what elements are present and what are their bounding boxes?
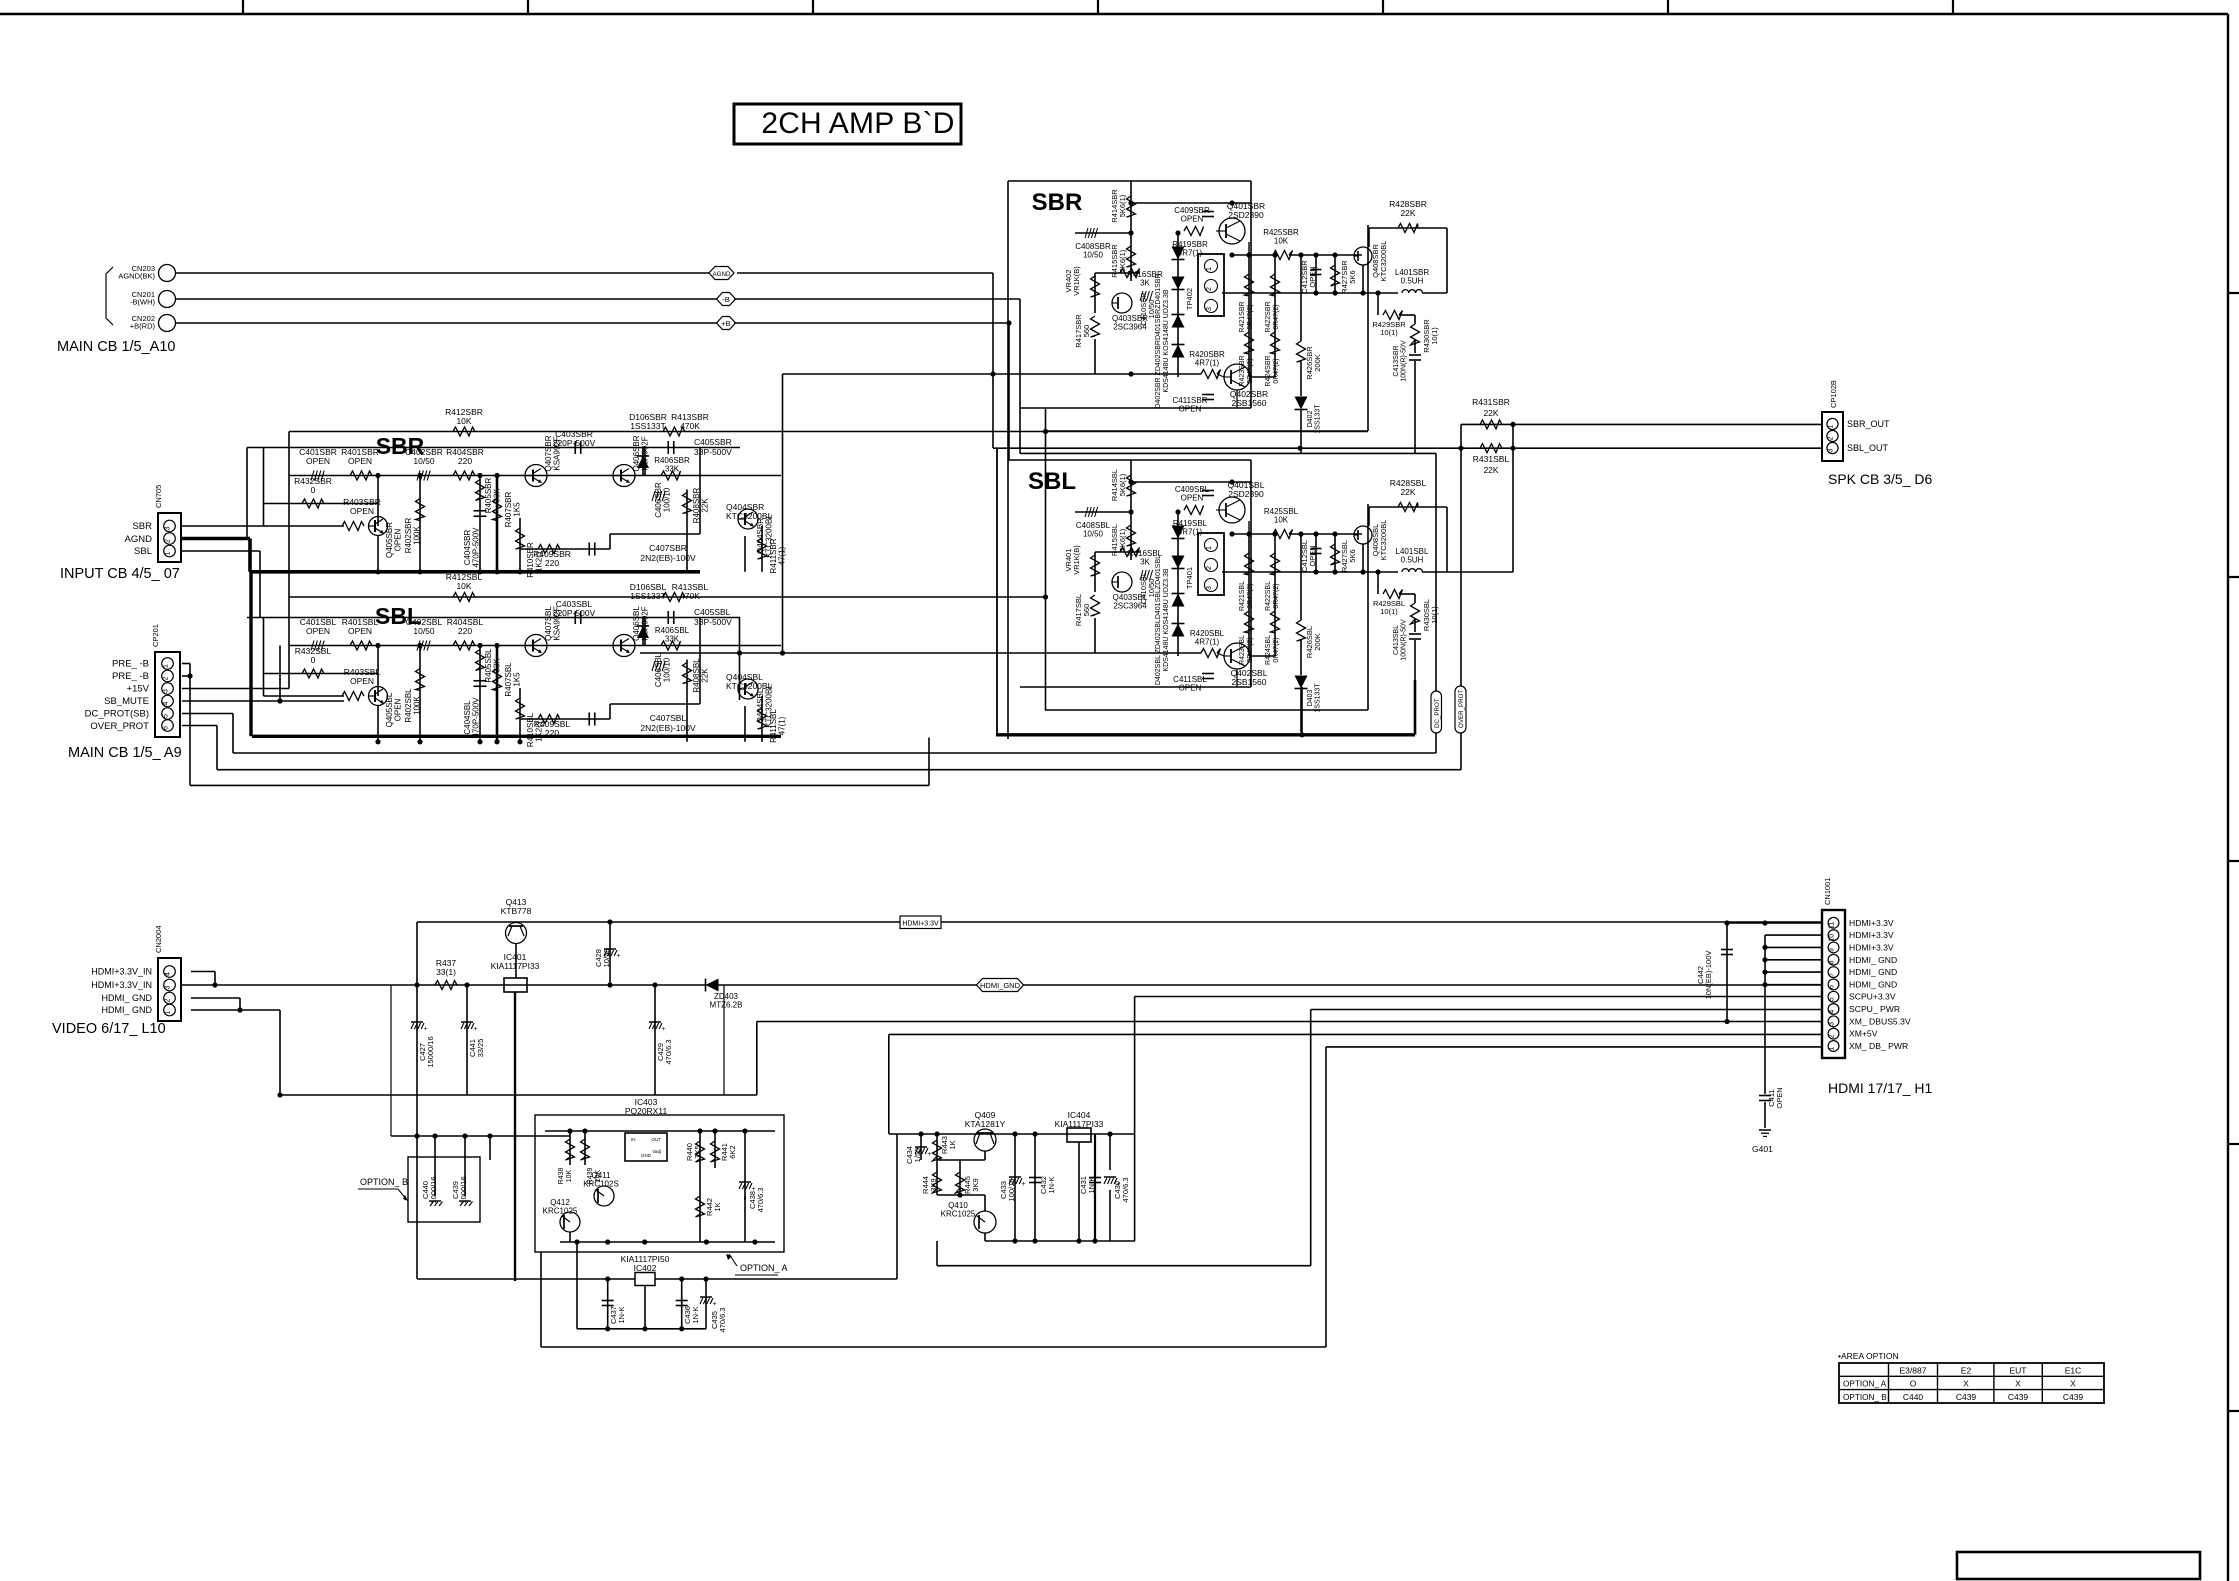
svg-text:OPEN: OPEN — [348, 626, 372, 636]
svg-text:OPEN: OPEN — [1181, 215, 1204, 224]
svg-text:HDMI_ GND: HDMI_ GND — [101, 993, 152, 1003]
svg-text:1N-K: 1N-K — [1047, 1176, 1056, 1193]
svg-text:+: + — [1021, 1181, 1025, 1188]
svg-text:3K9: 3K9 — [929, 1178, 938, 1191]
svg-text:0R47(2): 0R47(2) — [1247, 583, 1254, 608]
svg-text:1: 1 — [1829, 1047, 1836, 1051]
svg-text:1K5: 1K5 — [513, 672, 522, 687]
svg-text:0R47(2): 0R47(2) — [1247, 304, 1254, 329]
svg-text:R431SBR: R431SBR — [1472, 397, 1510, 407]
svg-text:OPEN: OPEN — [348, 456, 372, 466]
svg-text:SB_MUTE: SB_MUTE — [104, 696, 149, 707]
svg-text:GND: GND — [641, 1153, 652, 1158]
svg-text:6K2: 6K2 — [728, 1145, 737, 1158]
svg-text:470P-500V: 470P-500V — [472, 697, 481, 738]
svg-text:10K: 10K — [456, 416, 471, 426]
svg-text:HDMI 17/17_ H1: HDMI 17/17_ H1 — [1828, 1080, 1932, 1096]
svg-text:10N(EB)-100V: 10N(EB)-100V — [1704, 951, 1713, 1000]
svg-text:0R47(2): 0R47(2) — [1273, 304, 1280, 329]
svg-text:AGND: AGND — [125, 534, 153, 545]
svg-text:KIA1117PI33: KIA1117PI33 — [491, 961, 540, 971]
svg-text:6: 6 — [1829, 985, 1836, 989]
svg-text:+: + — [661, 1026, 665, 1033]
svg-text:OPEN: OPEN — [1775, 1087, 1784, 1108]
svg-text:1000/16: 1000/16 — [429, 1176, 438, 1203]
svg-text:XM+5V: XM+5V — [1849, 1029, 1878, 1039]
svg-text:22K: 22K — [701, 498, 710, 513]
svg-text:C439: C439 — [2008, 1392, 2029, 1402]
svg-text:R423SBR: R423SBR — [1239, 355, 1246, 386]
svg-text:+15V: +15V — [127, 684, 150, 695]
svg-text:3: 3 — [1206, 307, 1213, 311]
svg-text:5: 5 — [1829, 997, 1836, 1001]
svg-text:OPEN: OPEN — [306, 626, 330, 636]
svg-text:SCPU_ PWR: SCPU_ PWR — [1849, 1004, 1900, 1014]
svg-text:470/6.3: 470/6.3 — [718, 1307, 727, 1332]
svg-text:0.5UH: 0.5UH — [1401, 277, 1424, 286]
svg-text:C407SBL: C407SBL — [650, 713, 687, 723]
svg-text:CP102B: CP102B — [1829, 380, 1838, 408]
svg-text:1SS133T: 1SS133T — [1315, 683, 1322, 713]
svg-text:CN705: CN705 — [154, 485, 163, 508]
svg-text:OUT: OUT — [652, 1137, 662, 1142]
svg-text:SBR: SBR — [132, 521, 152, 532]
svg-text:11: 11 — [1829, 922, 1836, 929]
svg-text:D402: D402 — [1307, 411, 1314, 428]
svg-text:R424SBL: R424SBL — [1265, 635, 1272, 665]
svg-text:200K: 200K — [1313, 354, 1322, 372]
svg-text:33K: 33K — [665, 635, 680, 644]
svg-text:2: 2 — [1206, 566, 1213, 570]
svg-text:OPEN: OPEN — [394, 698, 403, 721]
svg-text:0.5UH: 0.5UH — [1401, 556, 1424, 565]
svg-text:R422SBR: R422SBR — [1265, 301, 1272, 332]
svg-text:OPTION_ A: OPTION_ A — [1843, 1380, 1887, 1389]
svg-text:200K: 200K — [1313, 633, 1322, 651]
svg-text:KDS4148U KOS4148U UDZ3.3B: KDS4148U KOS4148U UDZ3.3B — [1163, 568, 1170, 671]
svg-text:SBL: SBL — [134, 546, 152, 557]
svg-text:1N-K: 1N-K — [691, 1306, 700, 1323]
svg-text:2: 2 — [1828, 437, 1835, 441]
svg-text:1: 1 — [165, 552, 172, 556]
svg-text:G401: G401 — [1752, 1144, 1773, 1154]
svg-text:470K: 470K — [680, 421, 700, 431]
svg-text:SBL_OUT: SBL_OUT — [1847, 443, 1889, 453]
svg-text:MAIN CB 1/5_ A9: MAIN CB 1/5_ A9 — [68, 745, 182, 761]
svg-text:MAIN CB 1/5_A10: MAIN CB 1/5_A10 — [57, 339, 175, 355]
svg-text:10K: 10K — [1274, 516, 1289, 525]
svg-text:5: 5 — [163, 714, 170, 718]
svg-text:10/50: 10/50 — [1083, 530, 1104, 539]
svg-text:6: 6 — [163, 726, 170, 730]
svg-text:EUT: EUT — [2010, 1366, 2027, 1376]
svg-text:TP402: TP402 — [1185, 288, 1194, 310]
svg-text:3: 3 — [1206, 586, 1213, 590]
svg-text:10/50: 10/50 — [413, 456, 435, 466]
svg-text:+: + — [712, 1301, 716, 1308]
svg-text:3: 3 — [1829, 1022, 1836, 1026]
svg-text:3: 3 — [163, 689, 170, 693]
svg-text:KTA1281Y: KTA1281Y — [965, 1119, 1006, 1129]
svg-text:+: + — [927, 1151, 931, 1158]
svg-text:VR1K(B): VR1K(B) — [1072, 266, 1081, 296]
svg-text:10K: 10K — [566, 1169, 573, 1182]
svg-text:XM_ DBUS5.3V: XM_ DBUS5.3V — [1849, 1016, 1911, 1026]
svg-text:+: + — [616, 953, 620, 960]
svg-text:100/16: 100/16 — [1007, 1179, 1016, 1202]
svg-text:5K6: 5K6 — [1348, 549, 1357, 562]
svg-text:470P-500V: 470P-500V — [472, 527, 481, 568]
svg-text:E1C: E1C — [2065, 1366, 2082, 1376]
svg-text:OPEN: OPEN — [306, 456, 330, 466]
svg-text:R431SBL: R431SBL — [1473, 454, 1510, 464]
svg-text:100K: 100K — [413, 525, 422, 544]
svg-text:10/50: 10/50 — [413, 626, 435, 636]
svg-text:1SS133T: 1SS133T — [630, 591, 665, 601]
svg-text:KTC3200BL: KTC3200BL — [1379, 520, 1388, 561]
svg-text:C407SBR: C407SBR — [649, 543, 687, 553]
svg-text:Vadj: Vadj — [652, 1149, 661, 1154]
svg-text:OPEN: OPEN — [1181, 494, 1204, 503]
svg-text:15000/16: 15000/16 — [426, 1036, 435, 1067]
svg-text:C405SBL: C405SBL — [694, 607, 731, 617]
svg-text:C439: C439 — [1956, 1392, 1977, 1402]
svg-text:KRC1025: KRC1025 — [941, 1210, 976, 1219]
svg-text:0R47(2): 0R47(2) — [1273, 583, 1280, 608]
svg-text:1: 1 — [165, 1011, 172, 1015]
svg-text:100/10: 100/10 — [663, 487, 672, 512]
svg-text:2: 2 — [1206, 287, 1213, 291]
svg-text:5K6(1): 5K6(1) — [1118, 473, 1127, 496]
svg-text:+B(RD): +B(RD) — [130, 322, 156, 331]
svg-text:OVER_PROT: OVER_PROT — [1458, 690, 1465, 728]
svg-text:KTC3200BL: KTC3200BL — [1379, 241, 1388, 282]
svg-text:9: 9 — [1829, 948, 1836, 952]
svg-text:X: X — [2015, 1379, 2021, 1389]
svg-text:OPEN: OPEN — [1308, 266, 1317, 287]
svg-text:•AREA OPTION: •AREA OPTION — [1838, 1351, 1899, 1361]
svg-text:KDS4148U KOS4148U UDZ3.3B: KDS4148U KOS4148U UDZ3.3B — [1163, 289, 1170, 392]
svg-text:VIDEO 6/17_ L10: VIDEO 6/17_ L10 — [52, 1021, 166, 1037]
svg-text:E2: E2 — [1961, 1366, 1972, 1376]
svg-text:SBR: SBR — [1032, 189, 1083, 216]
svg-text:D402SBL ZD402SBLD401SBLZD401SB: D402SBL ZD402SBLD401SBLZD401SBL — [1155, 555, 1162, 685]
svg-text:0: 0 — [311, 485, 316, 495]
svg-text:3K: 3K — [1140, 558, 1150, 567]
svg-text:33/25: 33/25 — [476, 1039, 485, 1058]
svg-text:X: X — [2070, 1379, 2076, 1389]
svg-text:CN2004: CN2004 — [154, 925, 163, 953]
svg-text:OPEN: OPEN — [350, 676, 374, 686]
svg-text:TP401: TP401 — [1185, 567, 1194, 589]
svg-text:7: 7 — [1829, 973, 1836, 977]
svg-text:10(1): 10(1) — [1430, 327, 1439, 345]
svg-text:OPEN: OPEN — [394, 528, 403, 551]
svg-text:2CH AMP B`D: 2CH AMP B`D — [761, 107, 954, 140]
svg-text:XM_ DB_ PWR: XM_ DB_ PWR — [1849, 1041, 1908, 1051]
svg-text:1: 1 — [1206, 546, 1213, 550]
svg-text:HDMI+3.3V: HDMI+3.3V — [1849, 942, 1894, 952]
svg-text:33K: 33K — [493, 658, 502, 673]
svg-text:47(1): 47(1) — [778, 716, 787, 735]
svg-text:1000/16: 1000/16 — [459, 1176, 468, 1203]
svg-text:PRE_ -B: PRE_ -B — [112, 671, 149, 682]
svg-text:R424SBR: R424SBR — [1265, 355, 1272, 386]
svg-text:SBL: SBL — [1028, 468, 1076, 495]
svg-text:CP201: CP201 — [151, 624, 160, 647]
svg-text:10K: 10K — [456, 581, 471, 591]
svg-text:VR1K(B): VR1K(B) — [1072, 545, 1081, 575]
svg-text:470/6.3: 470/6.3 — [756, 1187, 765, 1212]
svg-text:PRE_ -B: PRE_ -B — [112, 659, 149, 670]
svg-text:2: 2 — [163, 677, 170, 681]
svg-text:HDMI_ GND: HDMI_ GND — [1849, 967, 1897, 977]
svg-text:DC_PROT(SB): DC_PROT(SB) — [85, 709, 149, 720]
svg-text:C405SBR: C405SBR — [694, 437, 732, 447]
svg-text:HDMI_ GND: HDMI_ GND — [1849, 979, 1897, 989]
svg-text:E3/887: E3/887 — [1900, 1366, 1927, 1376]
svg-text:R422SBL: R422SBL — [1265, 581, 1272, 611]
svg-text:0: 0 — [311, 655, 316, 665]
svg-text:-B(WH): -B(WH) — [130, 298, 155, 307]
svg-text:100N(R)-50V: 100N(R)-50V — [1401, 619, 1408, 661]
svg-text:KTC3200BL: KTC3200BL — [726, 511, 773, 521]
svg-text:5K6: 5K6 — [1348, 270, 1357, 283]
svg-text:10K: 10K — [1274, 237, 1289, 246]
svg-text:HDMI+3.3V_IN: HDMI+3.3V_IN — [91, 967, 152, 977]
svg-text:470/6.3: 470/6.3 — [1121, 1177, 1130, 1202]
svg-text:C413SBL: C413SBL — [1393, 625, 1400, 655]
svg-text:1K5: 1K5 — [513, 502, 522, 517]
svg-text:D403: D403 — [1307, 690, 1314, 707]
svg-text:4R7(1): 4R7(1) — [1195, 638, 1220, 647]
svg-text:2: 2 — [1829, 1034, 1836, 1038]
svg-text:DC_PROT: DC_PROT — [1434, 698, 1441, 728]
svg-text:560: 560 — [1082, 325, 1091, 338]
svg-text:KRC102S: KRC102S — [583, 1180, 619, 1189]
svg-text:R423SBL: R423SBL — [1239, 635, 1246, 665]
svg-text:10(1): 10(1) — [1430, 606, 1439, 624]
svg-text:R421SBL: R421SBL — [1239, 581, 1246, 611]
svg-text:3: 3 — [1828, 449, 1835, 453]
svg-text:+: + — [423, 1026, 427, 1033]
svg-text:X: X — [1963, 1379, 1969, 1389]
svg-text:7K5: 7K5 — [693, 1145, 702, 1158]
svg-text:+: + — [473, 1026, 477, 1033]
svg-text:4: 4 — [165, 972, 172, 976]
svg-text:HDMI_ GND: HDMI_ GND — [101, 1005, 152, 1015]
svg-text:2: 2 — [165, 999, 172, 1003]
svg-text:+B: +B — [721, 319, 730, 328]
svg-text:1SS133T: 1SS133T — [1315, 404, 1322, 434]
svg-text:PQ20RX11: PQ20RX11 — [625, 1106, 668, 1116]
svg-text:4: 4 — [163, 702, 170, 706]
svg-text:O: O — [1910, 1379, 1917, 1389]
svg-text:OPTION_ B: OPTION_ B — [360, 1177, 408, 1187]
svg-text:D402SBR ZD402SBRD401SBRZD401SB: D402SBR ZD402SBRD401SBRZD401SBR — [1155, 273, 1162, 408]
svg-text:1N-K: 1N-K — [617, 1306, 626, 1323]
svg-text:R438: R438 — [558, 1168, 565, 1185]
svg-text:10/50: 10/50 — [602, 949, 611, 968]
svg-text:22K: 22K — [1400, 487, 1415, 497]
svg-text:CN1001: CN1001 — [1823, 877, 1832, 905]
svg-text:OPEN: OPEN — [350, 506, 374, 516]
svg-text:33K: 33K — [665, 465, 680, 474]
svg-text:AGND(BK): AGND(BK) — [118, 272, 155, 281]
svg-text:SCPU+3.3V: SCPU+3.3V — [1849, 992, 1896, 1002]
svg-text:OPEN: OPEN — [1308, 545, 1317, 566]
svg-text:HDMI_ GND: HDMI_ GND — [1849, 955, 1897, 965]
svg-text:SPK CB 3/5_ D6: SPK CB 3/5_ D6 — [1828, 471, 1932, 487]
svg-text:KTB778: KTB778 — [501, 906, 532, 916]
svg-text:-B: -B — [722, 295, 730, 304]
svg-text:3K9: 3K9 — [971, 1178, 980, 1191]
svg-text:KSA992F: KSA992F — [553, 606, 562, 640]
svg-text:OPEN: OPEN — [1179, 405, 1202, 414]
svg-text:0R47(2): 0R47(2) — [1273, 637, 1280, 662]
svg-text:OVER_PROT: OVER_PROT — [90, 721, 149, 732]
svg-text:INPUT CB 4/5_ 07: INPUT CB 4/5_ 07 — [60, 566, 180, 582]
svg-text:KRC1025: KRC1025 — [543, 1207, 578, 1216]
svg-text:8: 8 — [1829, 960, 1836, 964]
svg-text:4: 4 — [1829, 1010, 1836, 1014]
svg-text:IC402: IC402 — [634, 1263, 657, 1273]
svg-text:470/6.3: 470/6.3 — [664, 1039, 673, 1064]
svg-text:C439: C439 — [2063, 1392, 2084, 1402]
svg-text:33K: 33K — [493, 488, 502, 503]
svg-text:HDMI_GND: HDMI_GND — [980, 981, 1021, 990]
svg-text:10(1): 10(1) — [1380, 328, 1398, 337]
svg-text:33(1): 33(1) — [436, 967, 456, 977]
svg-text:100N(R)-50V: 100N(R)-50V — [1401, 340, 1408, 382]
svg-text:1N-K: 1N-K — [1087, 1176, 1096, 1193]
svg-text:MTZ6.2B: MTZ6.2B — [710, 1001, 743, 1010]
svg-text:22K: 22K — [701, 668, 710, 683]
svg-text:3: 3 — [165, 986, 172, 990]
svg-text:1/50: 1/50 — [913, 1148, 922, 1163]
svg-text:OPEN: OPEN — [1179, 684, 1202, 693]
svg-text:C440: C440 — [1903, 1392, 1924, 1402]
svg-text:1K: 1K — [713, 1202, 722, 1211]
svg-text:10: 10 — [1829, 934, 1836, 942]
svg-text:AGND: AGND — [713, 271, 731, 278]
svg-text:HDMI+3.3V: HDMI+3.3V — [1849, 918, 1894, 928]
svg-text:1: 1 — [163, 664, 170, 668]
svg-text:HDMI+3.3V: HDMI+3.3V — [902, 921, 939, 928]
svg-text:HDMI+3.3V: HDMI+3.3V — [1849, 930, 1894, 940]
svg-text:R421SBR: R421SBR — [1239, 301, 1246, 332]
svg-text:0R47(2): 0R47(2) — [1273, 358, 1280, 383]
svg-text:KTC3200BL: KTC3200BL — [726, 681, 773, 691]
svg-text:100/10: 100/10 — [663, 657, 672, 682]
svg-text:220: 220 — [458, 456, 472, 466]
svg-text:220: 220 — [458, 626, 472, 636]
svg-text:22K: 22K — [1483, 408, 1498, 418]
svg-text:10(1): 10(1) — [1380, 607, 1398, 616]
svg-text:1SS133T: 1SS133T — [630, 421, 665, 431]
svg-text:220: 220 — [545, 558, 559, 568]
svg-text:C413SBR: C413SBR — [1393, 345, 1400, 376]
svg-text:3K: 3K — [1140, 279, 1150, 288]
svg-text:10/50: 10/50 — [1083, 251, 1104, 260]
svg-text:OPTION_ A: OPTION_ A — [740, 1263, 788, 1273]
svg-text:OPTION_ B: OPTION_ B — [1843, 1393, 1887, 1402]
svg-text:22K: 22K — [1400, 208, 1415, 218]
svg-text:100K: 100K — [413, 695, 422, 714]
svg-text:1: 1 — [1828, 425, 1835, 429]
svg-text:IN: IN — [631, 1137, 636, 1142]
svg-text:5K6(1): 5K6(1) — [1118, 194, 1127, 217]
svg-text:4R7(1): 4R7(1) — [1195, 359, 1220, 368]
svg-text:SBR_OUT: SBR_OUT — [1847, 419, 1890, 429]
svg-text:2: 2 — [165, 539, 172, 543]
svg-text:560: 560 — [1082, 604, 1091, 617]
svg-text:3: 3 — [165, 527, 172, 531]
svg-text:22K: 22K — [1483, 465, 1498, 475]
svg-text:HDMI+3.3V_IN: HDMI+3.3V_IN — [91, 980, 152, 990]
svg-text:1K: 1K — [948, 1140, 957, 1149]
svg-text:1: 1 — [1206, 267, 1213, 271]
svg-text:KSA992F: KSA992F — [553, 436, 562, 470]
